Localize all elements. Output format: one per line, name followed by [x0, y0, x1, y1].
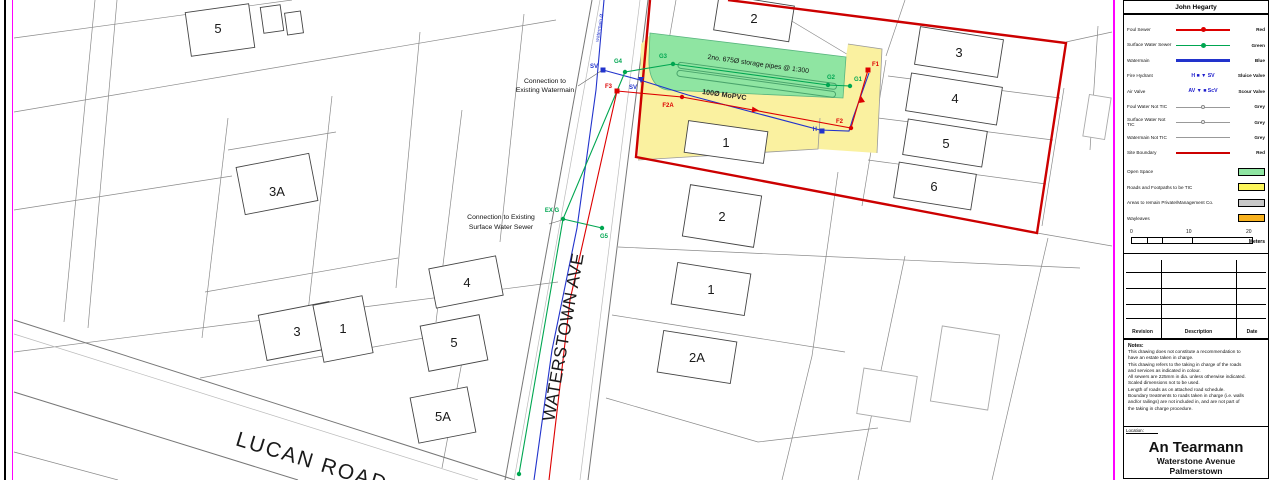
project-street: Waterstone Avenue [1124, 456, 1268, 466]
label-g3: G3 [659, 54, 668, 60]
label-g2: G2 [827, 75, 836, 81]
sheet-border-left [4, 0, 6, 480]
label-sv2: SV [629, 85, 637, 91]
location-block: Location: An Tearmann Waterstone Avenue … [1124, 426, 1268, 480]
label-h: H [813, 127, 817, 133]
legend-row-air-valve: Air Valve AV ▼ ■ ScV Scour Valve [1127, 84, 1265, 99]
plot-3-left: 3 [293, 324, 300, 339]
scale-unit: Meters [1249, 239, 1265, 245]
plot-4-site: 4 [951, 91, 958, 106]
legend-row-fire-hydrant: Fire Hydrant H ■ ▼ SV Sluice Valve [1127, 68, 1265, 83]
wayleaves-swatch [1238, 214, 1265, 222]
plot-6-site: 6 [930, 179, 937, 194]
legend-lines: Foul Sewer Red Surface Water Sewer Green… [1124, 16, 1268, 162]
fire-hydrant-symbol: H ■ ▼ SV [1174, 71, 1232, 81]
legend-row-roads-tic: Roads and Footpaths to be TIC [1127, 180, 1265, 196]
legend-row-watermain: Watermain Blue [1127, 53, 1265, 68]
watermain-not-tic-symbol [1174, 132, 1232, 142]
plot-2-mid: 2 [718, 209, 725, 224]
location-label: Location: [1126, 428, 1158, 434]
legend-row-private-areas: Areas to remain Private/Management Co. [1127, 195, 1265, 211]
foul-sewer-symbol [1174, 25, 1232, 35]
plot-5-left: 5 [450, 335, 457, 350]
plot-3a: 3A [269, 184, 285, 199]
private-areas-swatch [1238, 199, 1265, 207]
project-title: An Tearmann [1124, 439, 1268, 456]
open-space-swatch [1238, 168, 1265, 176]
label-f1: F1 [872, 62, 880, 68]
site-boundary-symbol [1174, 148, 1232, 158]
foul-not-tic-symbol [1174, 102, 1232, 112]
label-g5: G5 [600, 234, 609, 240]
surface-not-tic-symbol [1174, 117, 1232, 127]
surface-sewer-symbol [1174, 40, 1232, 50]
ann-surface-line1: Connection to Existing [467, 214, 535, 221]
plot-3-site: 3 [955, 45, 962, 60]
title-block-panel: John Hegarty Foul Sewer Red Surface Wate… [1115, 0, 1280, 480]
project-town: Palmerstown [1124, 466, 1268, 476]
label-sv1: SV [590, 64, 598, 70]
street-waterstown-ave: WATERSTOWN AVE [538, 251, 587, 423]
legend-row-surface-not-tic: Surface Water Not TIC Grey [1127, 114, 1265, 129]
label-g4: G4 [614, 59, 623, 65]
ann-watermain-line1: Connection to [524, 78, 566, 85]
legend-areas: Open Space Roads and Footpaths to be TIC… [1124, 162, 1268, 228]
label-exg: EX G [545, 208, 560, 214]
legend-row-foul-sewer: Foul Sewer Red [1127, 22, 1265, 37]
author-name: John Hegarty [1124, 1, 1268, 15]
legend-row-open-space: Open Space [1127, 164, 1265, 180]
description-col-header: Description [1161, 329, 1236, 335]
legend-row-watermain-not-tic: Watermain Not TIC Grey [1127, 130, 1265, 145]
legend-row-foul-not-tic: Foul Water Not TIC Grey [1127, 99, 1265, 114]
watermain-symbol [1174, 55, 1232, 65]
label-g1: G1 [854, 77, 863, 83]
label-f3: F3 [605, 84, 613, 90]
roads-tic-swatch [1238, 183, 1265, 191]
drawing-sheet: SV G4 SV F3 G3 F2A G2 G1 F1 F2 H EX G G5… [0, 0, 1280, 480]
scale-bar-rule [1131, 237, 1253, 244]
site-plan-map: SV G4 SV F3 G3 F2A G2 G1 F1 F2 H EX G G5… [0, 0, 1115, 480]
plot-1-mid: 1 [707, 282, 714, 297]
date-col-header: Date [1236, 329, 1268, 335]
revision-col-header: Revision [1124, 329, 1161, 335]
existing-watermain-note: watermain Ø [595, 13, 606, 42]
label-f2a: F2A [662, 103, 674, 109]
label-f2: F2 [836, 119, 844, 125]
plot-4-left: 4 [463, 275, 470, 290]
parcel-lines [14, 0, 1112, 480]
plot-2-top: 2 [750, 11, 757, 26]
plot-1-left: 1 [339, 321, 346, 336]
ann-watermain-line2: Existing Watermain [516, 87, 575, 94]
revision-table: Revision Description Date [1124, 253, 1268, 338]
legend-row-site-boundary: Site Boundary Red [1127, 145, 1265, 160]
scale-bar: 0 10 20 Meters [1124, 228, 1268, 253]
plot-5a: 5A [435, 409, 451, 424]
plot-1-site: 1 [722, 135, 729, 150]
plot-5-topleft: 5 [214, 21, 221, 36]
plot-2a: 2A [689, 350, 705, 365]
street-lucan-road: LUCAN ROAD [233, 428, 391, 480]
ann-surface-line2: Surface Water Sewer [469, 224, 534, 231]
notes-block: Notes: This drawing does not constitute … [1124, 338, 1268, 426]
sheet-margin-left [12, 0, 14, 480]
legend-row-wayleaves: Wayleaves [1127, 211, 1265, 227]
plot-5-site: 5 [942, 136, 949, 151]
air-valve-symbol: AV ▼ ■ ScV [1174, 86, 1232, 96]
legend-row-surface-sewer: Surface Water Sewer Green [1127, 37, 1265, 52]
